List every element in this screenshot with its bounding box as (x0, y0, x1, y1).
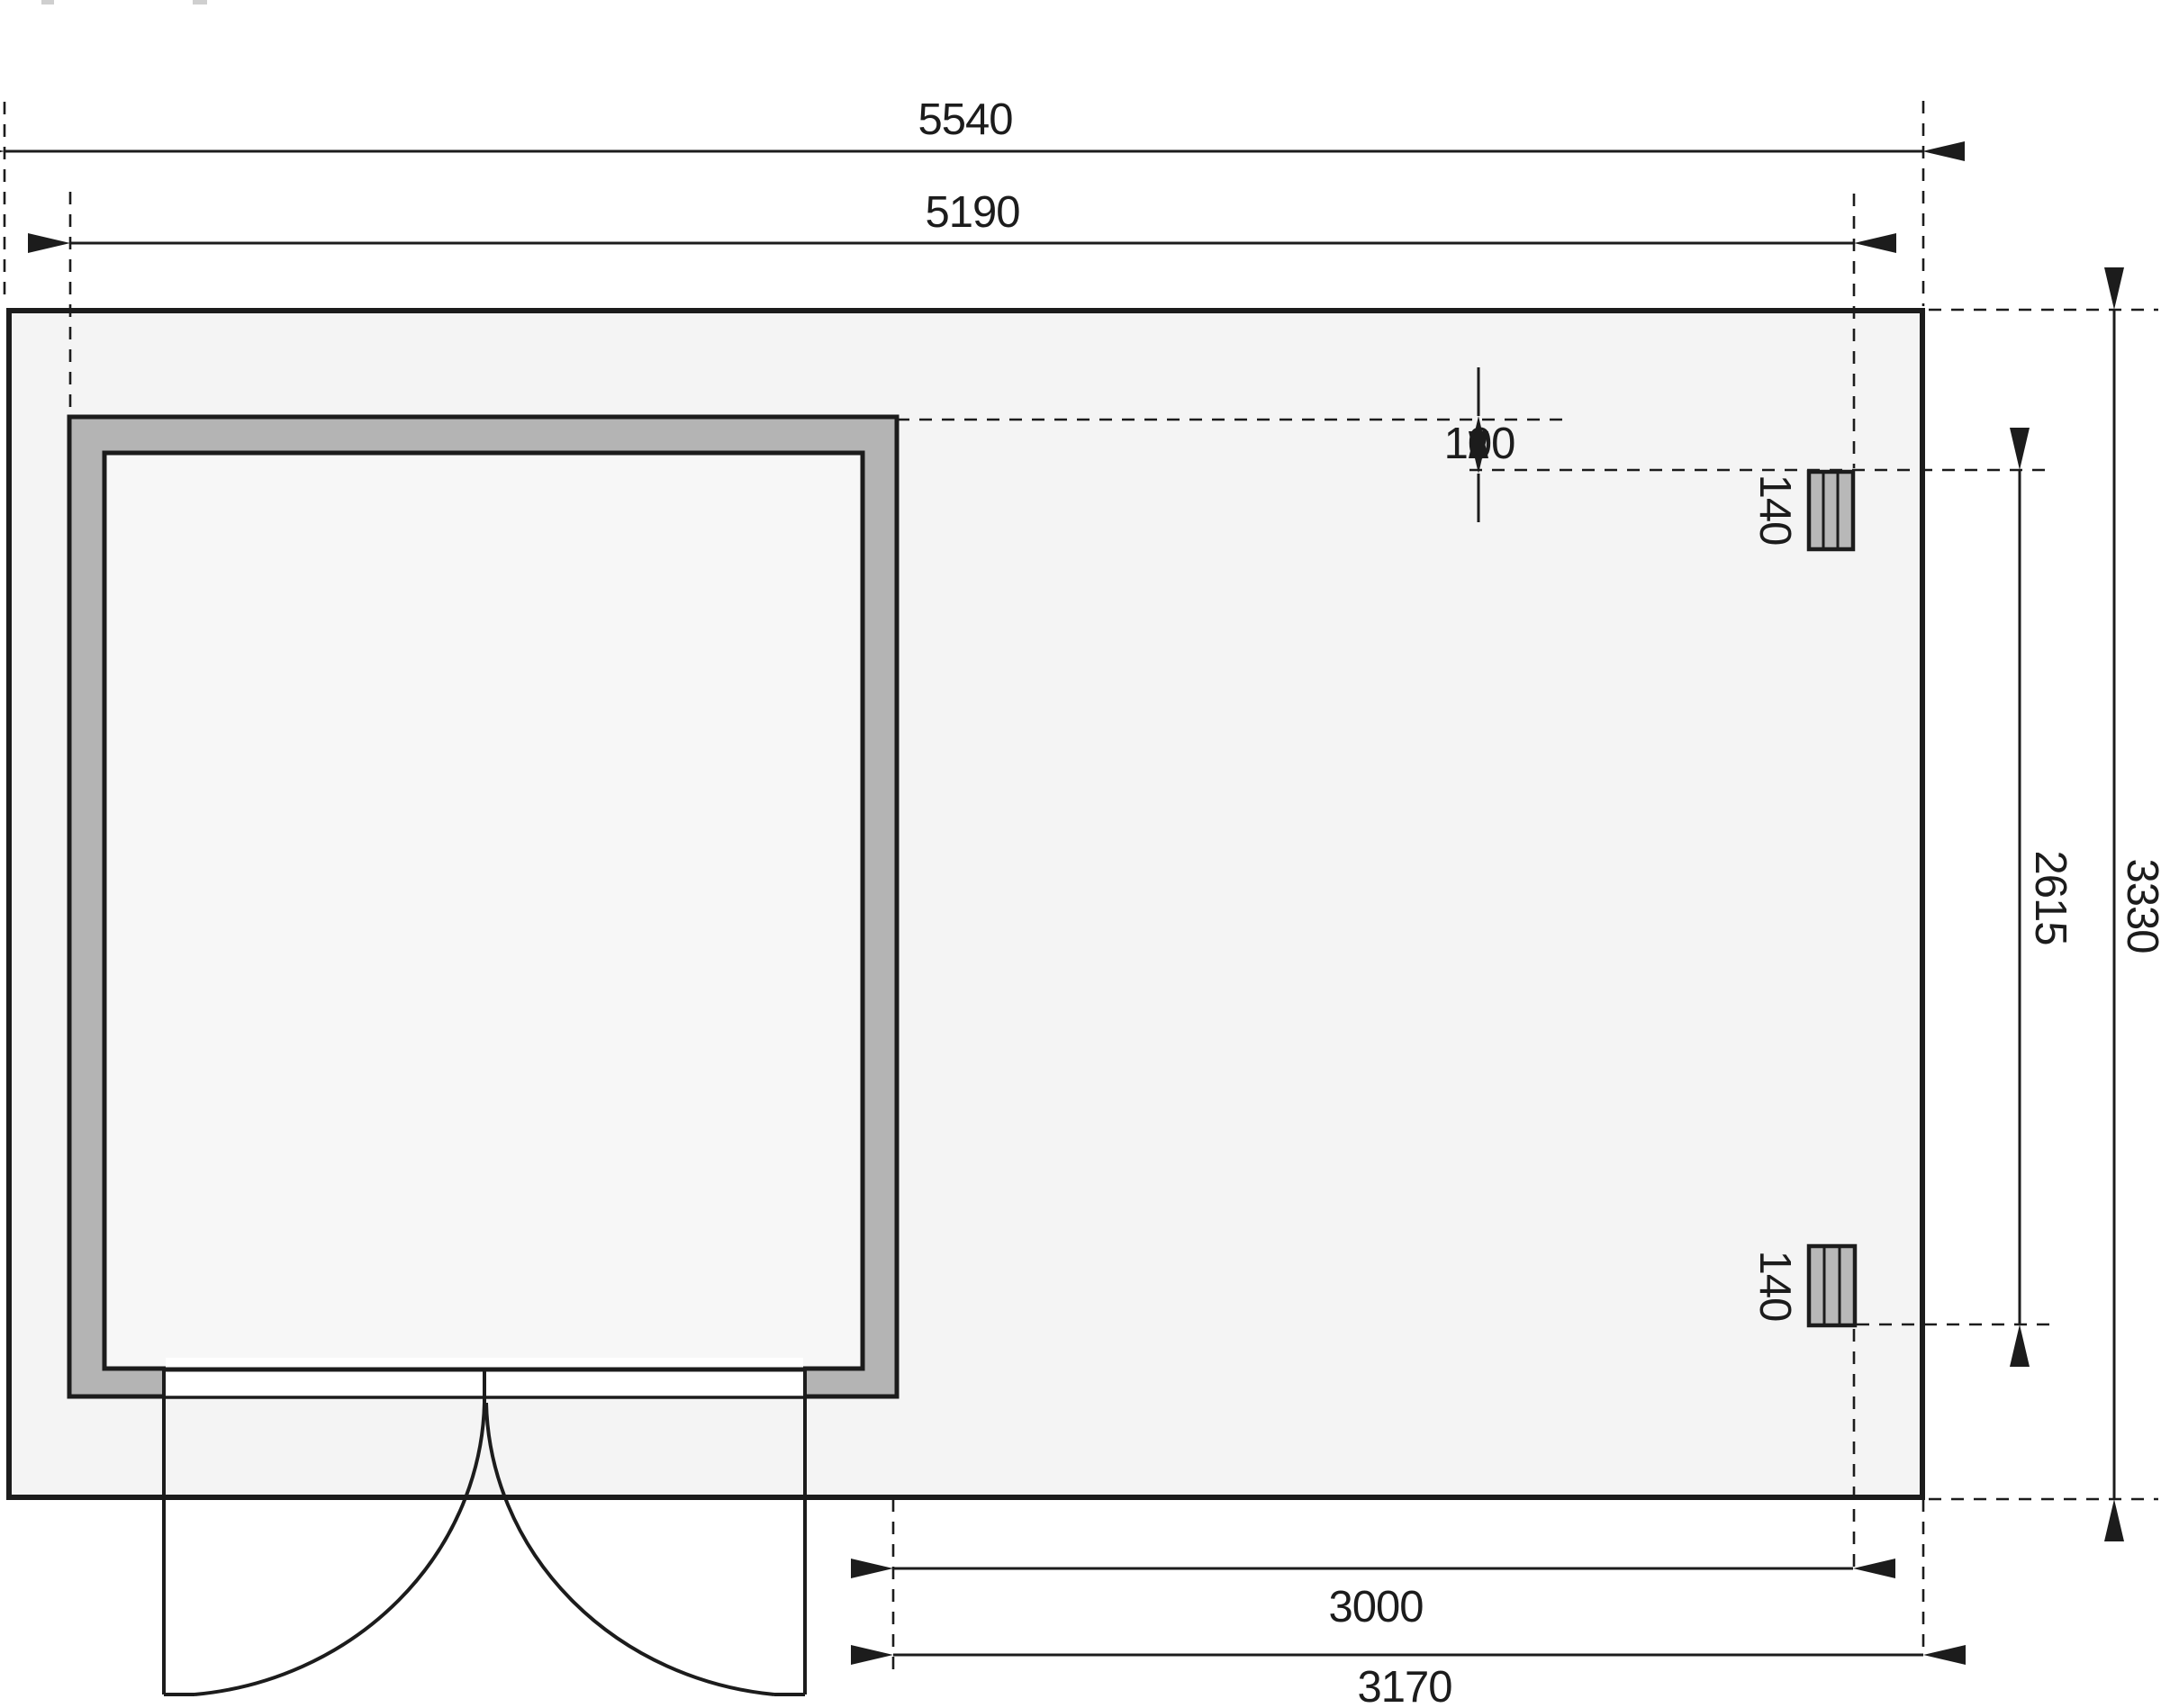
dim-label-3000: 3000 (1328, 1582, 1423, 1632)
floor-plan-canvas: 5540 5190 100 140 140 2615 3330 3000 317… (0, 0, 2161, 1708)
dim-label-5190: 5190 (925, 187, 1019, 238)
post-bottom (1809, 1246, 1855, 1325)
dim-label-100: 100 (1444, 419, 1515, 469)
dim-label-5540: 5540 (918, 95, 1012, 145)
dim-label-140-bottom: 140 (1750, 1251, 1800, 1322)
plan-drawing (0, 0, 2161, 1708)
dim-label-3170: 3170 (1357, 1662, 1451, 1708)
shed-inner-room (104, 453, 863, 1369)
post-top (1809, 472, 1853, 549)
top-crop-remnant-right (193, 0, 207, 5)
top-crop-remnant-left (41, 0, 54, 5)
dim-label-140-top: 140 (1750, 474, 1800, 546)
dim-label-3330: 3330 (2117, 858, 2161, 953)
dim-label-2615: 2615 (2025, 850, 2075, 944)
